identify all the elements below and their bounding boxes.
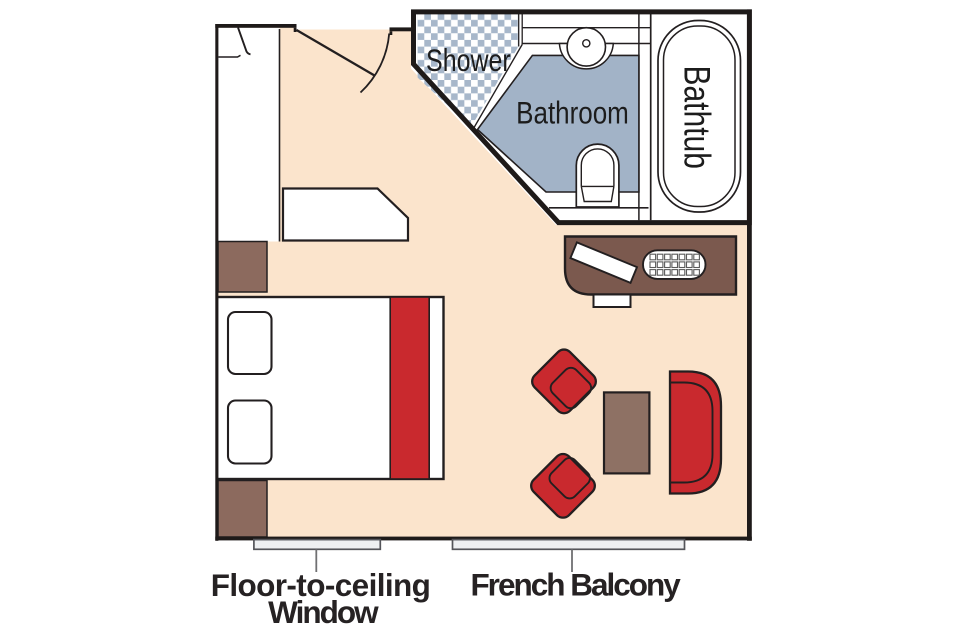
svg-text:Shower: Shower xyxy=(426,42,511,77)
svg-text:Window: Window xyxy=(268,594,379,630)
svg-text:French Balcony: French Balcony xyxy=(470,567,681,603)
svg-text:Bathtub: Bathtub xyxy=(676,66,718,169)
svg-text:Bathroom: Bathroom xyxy=(516,97,629,132)
